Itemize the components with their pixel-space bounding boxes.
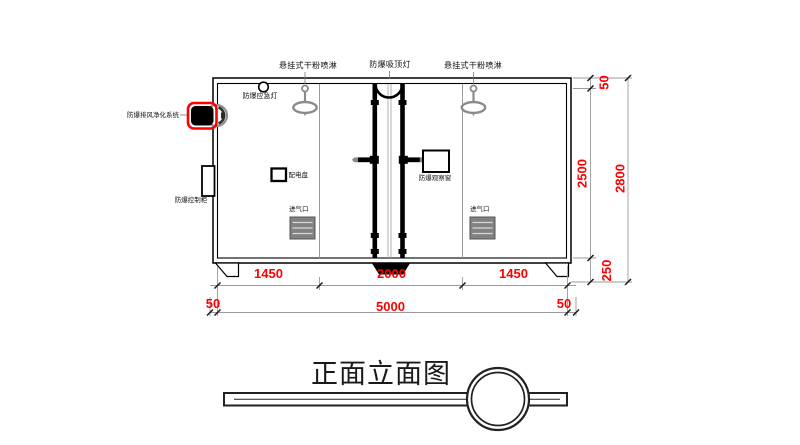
control-cabinet-box (202, 166, 215, 196)
cad-elevation-sheet: 悬挂式干粉喷淋 防爆吸顶灯 悬挂式干粉喷淋 防爆应急灯 防爆排风净化系统 防爆控… (0, 0, 800, 445)
dim-segment-right: 1450 (491, 266, 536, 281)
door-handle-left-icon (352, 156, 379, 164)
emergency-lamp-icon (259, 82, 269, 92)
label-observation-window: 防爆观察窗 (410, 175, 460, 182)
foot-left (216, 263, 239, 277)
label-ceiling-lamp: 防爆吸顶灯 (350, 61, 430, 70)
label-control-cabinet: 防爆控制柜 (172, 197, 210, 204)
dim-total-width: 5000 (368, 299, 413, 314)
title-circle-inner (472, 373, 525, 426)
sprinkler-right-icon (462, 86, 485, 116)
label-air-inlet-right: 进气口 (470, 206, 490, 213)
dim-segment-center: 2000 (369, 266, 414, 281)
dim-right-offset: 50 (553, 296, 575, 311)
dim-segment-left: 1450 (246, 266, 291, 281)
sprinkler-left-icon (293, 86, 316, 116)
foot-right (546, 263, 569, 277)
distribution-panel-box (272, 169, 287, 182)
air-inlet-right-grille (470, 217, 495, 239)
container-outline (213, 78, 571, 263)
label-distribution-panel: 配电盘 (289, 172, 309, 179)
label-exhaust-purification: 防爆排风净化系统 (120, 112, 179, 119)
label-air-inlet-left: 进气口 (289, 206, 309, 213)
dim-base-height: 250 (599, 254, 614, 287)
dim-top-offset: 50 (597, 71, 612, 93)
drawing-title: 正面立面图 (303, 352, 459, 391)
dim-total-height: 2800 (613, 155, 628, 201)
dim-left-offset: 50 (202, 296, 224, 311)
center-door-frame (352, 84, 425, 258)
label-sprinkler-left: 悬挂式干粉喷淋 (268, 62, 348, 71)
ceiling-lamp-icon (376, 84, 403, 98)
air-inlet-left-grille (290, 217, 315, 239)
label-sprinkler-right: 悬挂式干粉喷淋 (433, 62, 513, 71)
dim-inner-height: 2500 (575, 150, 590, 196)
label-emergency-lamp: 防爆应急灯 (230, 93, 290, 101)
observation-window-box (423, 151, 449, 173)
door-handle-right-icon (399, 156, 426, 164)
